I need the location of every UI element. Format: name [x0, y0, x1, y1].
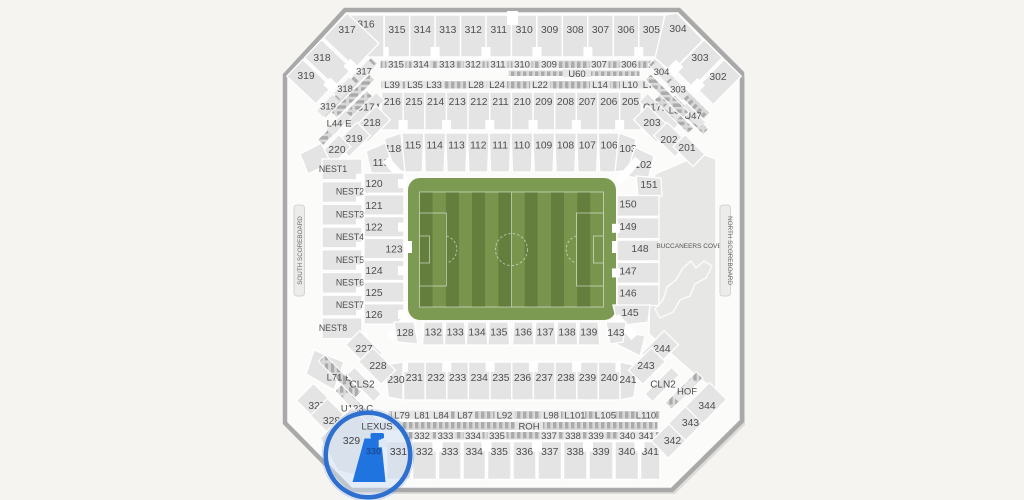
svg-text:307: 307 [592, 25, 609, 36]
svg-text:139: 139 [580, 328, 597, 339]
svg-text:334: 334 [466, 447, 483, 458]
svg-text:114: 114 [426, 141, 443, 152]
svg-text:126: 126 [365, 310, 382, 321]
svg-text:340: 340 [620, 431, 636, 442]
svg-text:L87: L87 [457, 411, 473, 422]
svg-text:106: 106 [601, 141, 618, 152]
svg-text:315: 315 [388, 25, 405, 36]
svg-text:L92: L92 [497, 411, 513, 422]
svg-text:214: 214 [427, 97, 444, 108]
svg-text:NEST8: NEST8 [319, 323, 347, 333]
svg-text:111: 111 [492, 141, 508, 152]
svg-text:339: 339 [588, 431, 604, 442]
svg-text:128: 128 [396, 328, 413, 339]
svg-text:NEST5: NEST5 [336, 255, 364, 265]
svg-text:306: 306 [621, 60, 637, 71]
svg-text:HOF: HOF [677, 387, 697, 398]
svg-text:L81: L81 [414, 411, 430, 422]
svg-text:335: 335 [491, 447, 508, 458]
svg-text:L33: L33 [426, 80, 442, 91]
svg-text:NEST2: NEST2 [336, 187, 364, 197]
svg-text:L44 E: L44 E [327, 119, 352, 130]
svg-text:209: 209 [535, 97, 552, 108]
svg-text:232: 232 [427, 373, 444, 384]
svg-text:332: 332 [416, 447, 433, 458]
svg-text:240: 240 [601, 373, 618, 384]
svg-text:207: 207 [579, 97, 596, 108]
svg-text:306: 306 [617, 25, 634, 36]
svg-text:L110: L110 [636, 411, 656, 422]
svg-text:NEST3: NEST3 [336, 209, 364, 219]
svg-text:137: 137 [537, 328, 554, 339]
svg-text:343: 343 [682, 418, 699, 429]
svg-text:307: 307 [591, 60, 607, 71]
svg-text:309: 309 [541, 60, 557, 71]
svg-text:108: 108 [557, 141, 574, 152]
svg-text:311: 311 [491, 25, 508, 36]
svg-text:234: 234 [471, 373, 488, 384]
svg-text:313: 313 [439, 25, 456, 36]
svg-text:238: 238 [557, 373, 574, 384]
svg-text:L24: L24 [489, 80, 505, 91]
svg-text:U60: U60 [568, 69, 585, 80]
svg-text:334: 334 [465, 431, 481, 442]
svg-text:216: 216 [384, 97, 401, 108]
svg-text:215: 215 [405, 97, 422, 108]
svg-text:150: 150 [619, 200, 636, 211]
svg-text:NORTH SCOREBOARD: NORTH SCOREBOARD [726, 216, 733, 285]
svg-text:344: 344 [698, 401, 715, 412]
svg-text:330: 330 [366, 447, 381, 457]
svg-text:138: 138 [558, 328, 575, 339]
svg-text:319: 319 [297, 71, 314, 82]
svg-text:122: 122 [365, 223, 382, 234]
svg-text:124: 124 [365, 266, 382, 277]
svg-text:L79: L79 [394, 411, 410, 422]
svg-text:147: 147 [619, 266, 636, 277]
svg-text:145: 145 [621, 308, 638, 319]
svg-text:342: 342 [664, 436, 681, 447]
svg-text:315: 315 [388, 60, 404, 71]
svg-text:206: 206 [600, 97, 617, 108]
svg-text:208: 208 [557, 97, 574, 108]
svg-text:123: 123 [385, 244, 402, 255]
svg-text:212: 212 [470, 97, 487, 108]
svg-text:113: 113 [448, 141, 465, 152]
svg-text:336: 336 [516, 447, 533, 458]
svg-text:132: 132 [425, 328, 442, 339]
svg-text:109: 109 [535, 141, 552, 152]
svg-text:201: 201 [678, 143, 695, 154]
svg-text:337: 337 [541, 447, 558, 458]
svg-text:143: 143 [607, 328, 624, 339]
svg-text:338: 338 [567, 447, 584, 458]
svg-text:148: 148 [631, 244, 648, 255]
svg-text:134: 134 [468, 328, 485, 339]
svg-text:339: 339 [592, 447, 609, 458]
svg-text:213: 213 [449, 97, 466, 108]
svg-text:335: 335 [489, 431, 505, 442]
svg-text:333: 333 [441, 447, 458, 458]
svg-text:236: 236 [514, 373, 531, 384]
svg-text:314: 314 [414, 25, 431, 36]
svg-text:CLS2: CLS2 [349, 380, 374, 391]
svg-text:239: 239 [579, 373, 596, 384]
svg-text:220: 220 [328, 145, 345, 156]
svg-text:LEXUS: LEXUS [361, 422, 392, 433]
svg-text:218: 218 [363, 118, 380, 129]
svg-text:304: 304 [654, 67, 670, 78]
svg-text:303: 303 [670, 85, 686, 96]
svg-text:203: 203 [643, 118, 660, 129]
svg-text:SOUTH SCOREBOARD: SOUTH SCOREBOARD [297, 216, 304, 285]
svg-text:135: 135 [490, 328, 507, 339]
svg-text:331: 331 [390, 447, 407, 458]
svg-text:228: 228 [369, 361, 386, 372]
svg-text:CLN2: CLN2 [650, 380, 676, 391]
svg-text:L105: L105 [595, 411, 616, 422]
svg-text:120: 120 [365, 179, 382, 190]
svg-text:151: 151 [640, 180, 657, 191]
svg-text:308: 308 [566, 25, 583, 36]
svg-text:211: 211 [492, 97, 509, 108]
svg-text:210: 210 [514, 97, 531, 108]
svg-text:332: 332 [414, 431, 430, 442]
svg-text:309: 309 [541, 25, 558, 36]
svg-text:235: 235 [492, 373, 509, 384]
svg-text:NEST4: NEST4 [336, 232, 364, 242]
svg-text:314: 314 [413, 60, 429, 71]
svg-text:333: 333 [438, 431, 454, 442]
svg-text:BUCCANEERS COVE: BUCCANEERS COVE [656, 243, 722, 250]
svg-text:338: 338 [565, 431, 581, 442]
svg-text:313: 313 [439, 60, 455, 71]
svg-text:L35: L35 [407, 80, 423, 91]
svg-text:243: 243 [637, 361, 654, 372]
svg-text:L28: L28 [468, 80, 484, 91]
svg-text:304: 304 [669, 24, 686, 35]
svg-text:136: 136 [515, 328, 532, 339]
svg-text:310: 310 [516, 25, 533, 36]
svg-text:337: 337 [541, 431, 557, 442]
svg-text:NEST7: NEST7 [336, 300, 364, 310]
svg-text:NEST1: NEST1 [319, 164, 347, 174]
svg-text:ROH: ROH [518, 422, 539, 433]
svg-text:340: 340 [618, 447, 635, 458]
svg-text:310: 310 [514, 60, 530, 71]
svg-text:205: 205 [622, 97, 639, 108]
svg-text:233: 233 [449, 373, 466, 384]
svg-text:L10: L10 [622, 80, 638, 91]
svg-text:L14: L14 [592, 80, 608, 91]
svg-text:311: 311 [490, 60, 505, 71]
svg-text:107: 107 [579, 141, 596, 152]
svg-text:303: 303 [691, 53, 708, 64]
svg-text:231: 231 [406, 373, 423, 384]
svg-text:149: 149 [619, 222, 636, 233]
svg-text:112: 112 [470, 141, 487, 152]
svg-text:312: 312 [465, 60, 481, 71]
svg-text:L98: L98 [543, 411, 559, 422]
svg-text:110: 110 [514, 141, 531, 152]
svg-text:305: 305 [643, 25, 660, 36]
svg-text:L84: L84 [433, 411, 449, 422]
svg-text:NEST6: NEST6 [336, 278, 364, 288]
svg-text:329: 329 [343, 436, 360, 447]
svg-text:146: 146 [619, 289, 636, 300]
svg-text:121: 121 [365, 201, 382, 212]
svg-text:302: 302 [709, 72, 726, 83]
svg-text:L22: L22 [532, 80, 548, 91]
svg-text:237: 237 [536, 373, 553, 384]
svg-text:318: 318 [313, 53, 330, 64]
svg-text:L39: L39 [384, 80, 400, 91]
svg-text:317: 317 [338, 25, 355, 36]
svg-text:230: 230 [387, 375, 404, 386]
svg-text:133: 133 [447, 328, 464, 339]
svg-text:312: 312 [465, 25, 482, 36]
svg-text:125: 125 [365, 288, 382, 299]
svg-text:115: 115 [405, 141, 422, 152]
svg-text:L101: L101 [564, 411, 585, 422]
